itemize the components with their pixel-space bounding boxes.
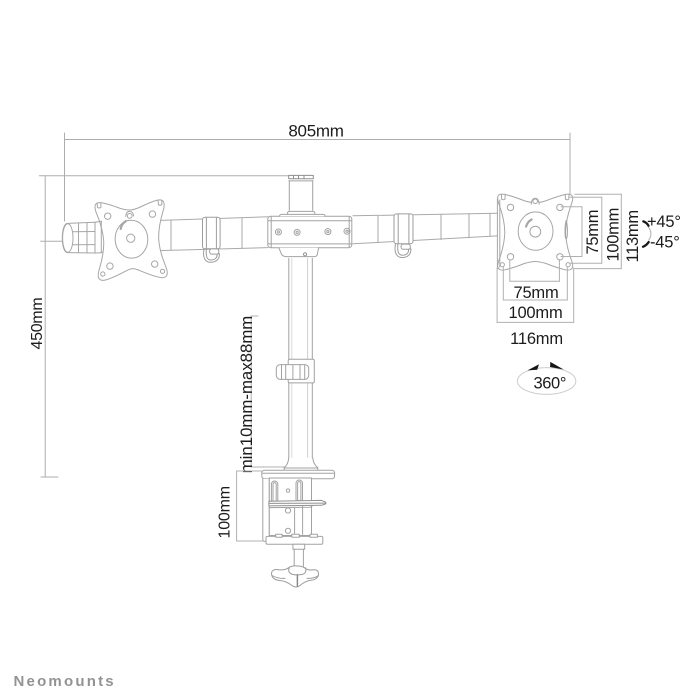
svg-text:100mm: 100mm	[508, 304, 562, 322]
svg-text:+45°: +45°	[647, 213, 681, 231]
svg-text:75mm: 75mm	[513, 284, 558, 302]
svg-text:75mm: 75mm	[584, 210, 602, 255]
svg-text:-45°: -45°	[650, 233, 680, 251]
svg-text:113mm: 113mm	[624, 210, 642, 262]
svg-text:Neomounts: Neomounts	[14, 673, 116, 690]
svg-text:100mm: 100mm	[605, 208, 623, 262]
svg-text:100mm: 100mm	[217, 486, 234, 538]
svg-text:min10mm-max88mm: min10mm-max88mm	[237, 316, 256, 474]
svg-text:805mm: 805mm	[288, 122, 343, 141]
svg-text:360°: 360°	[534, 374, 567, 392]
svg-text:116mm: 116mm	[510, 330, 563, 348]
svg-text:450mm: 450mm	[29, 298, 46, 350]
